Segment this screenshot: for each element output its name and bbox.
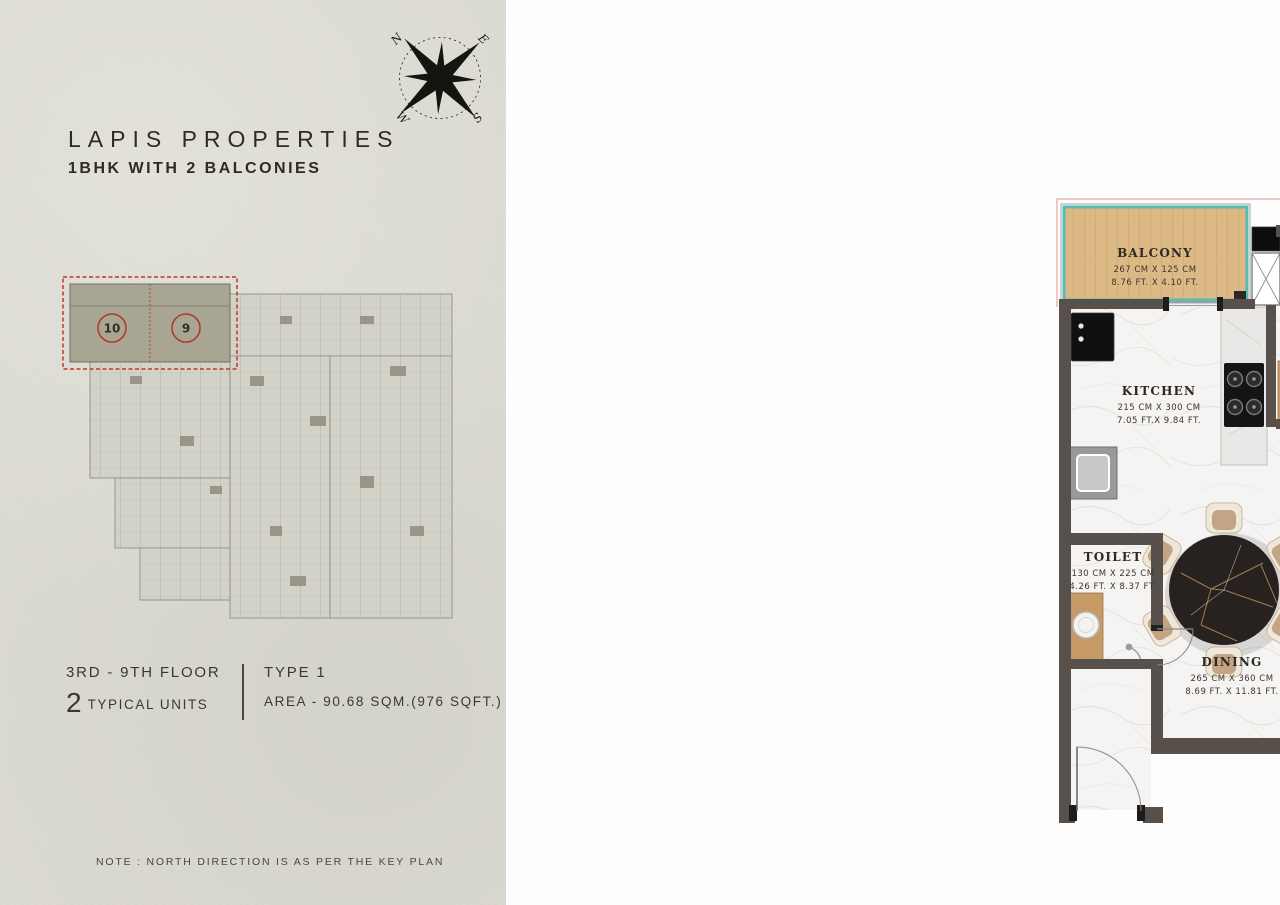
unit-number-10: 10	[104, 322, 121, 336]
room-label-kitchen: KITCHEN 215 CM X 300 CM 7.05 FT.X 9.84 F…	[1117, 384, 1201, 426]
svg-text:130 CM X 225 CM: 130 CM X 225 CM	[1071, 569, 1154, 579]
title-block: LAPIS PROPERTIES 1BHK WITH 2 BALCONIES	[68, 126, 399, 178]
area-label: AREA - 90.68 SQM.(976 SQFT.)	[264, 694, 502, 709]
service-shafts	[1252, 227, 1280, 305]
units-count: 2	[66, 687, 82, 718]
units-label: TYPICAL UNITS	[88, 697, 209, 712]
compass-icon: N E S W	[376, 14, 504, 142]
stove	[1224, 363, 1264, 427]
svg-text:8.69 FT. X 11.81 FT.: 8.69 FT. X 11.81 FT.	[1185, 687, 1278, 697]
page-subtitle: 1BHK WITH 2 BALCONIES	[68, 160, 399, 178]
key-plan-highlighted-units: 10 9	[63, 277, 237, 369]
svg-text:TOILET: TOILET	[1084, 550, 1143, 564]
svg-text:265 CM X 360 CM: 265 CM X 360 CM	[1190, 674, 1273, 684]
compass-n: N	[387, 30, 405, 48]
svg-text:BALCONY: BALCONY	[1117, 246, 1193, 260]
room-label-balcony-top: BALCONY 267 CM X 125 CM 8.76 FT. X 4.10 …	[1111, 246, 1198, 288]
svg-text:DINING: DINING	[1201, 655, 1262, 669]
svg-text:8.76 FT. X 4.10 FT.: 8.76 FT. X 4.10 FT.	[1111, 278, 1198, 288]
svg-text:215 CM X 300 CM: 215 CM X 300 CM	[1117, 403, 1200, 413]
floor-range-label: 3RD - 9TH FLOOR	[66, 664, 238, 681]
svg-text:267 CM X 125 CM: 267 CM X 125 CM	[1113, 265, 1196, 275]
svg-text:7.05 FT.X 9.84 FT.: 7.05 FT.X 9.84 FT.	[1117, 416, 1201, 426]
unit-number-9: 9	[182, 322, 190, 336]
compass-w: W	[393, 109, 412, 128]
key-plan: 10 9	[60, 276, 465, 628]
floor-info-divider	[242, 664, 244, 720]
floor-plan: BALCONY 267 CM X 125 CM 8.76 FT. X 4.10 …	[1051, 195, 1280, 850]
svg-text:KITCHEN: KITCHEN	[1122, 384, 1196, 398]
north-direction-note: NOTE : NORTH DIRECTION IS AS PER THE KEY…	[96, 856, 444, 868]
floorplan-right-panel: LAPIS	[506, 0, 1280, 905]
kitchen-sink	[1069, 447, 1117, 499]
svg-text:4.26 FT. X 8.37 FT.: 4.26 FT. X 8.37 FT.	[1069, 582, 1156, 592]
floor-info: 3RD - 9TH FLOOR 2TYPICAL UNITS TYPE 1 AR…	[66, 664, 502, 720]
page-title: LAPIS PROPERTIES	[68, 126, 399, 153]
compass-s: S	[470, 110, 486, 126]
brochure-left-panel: N E S W LAPIS PROPERTIES 1BHK WITH 2 BAL…	[0, 0, 506, 905]
type-label: TYPE 1	[264, 664, 502, 681]
